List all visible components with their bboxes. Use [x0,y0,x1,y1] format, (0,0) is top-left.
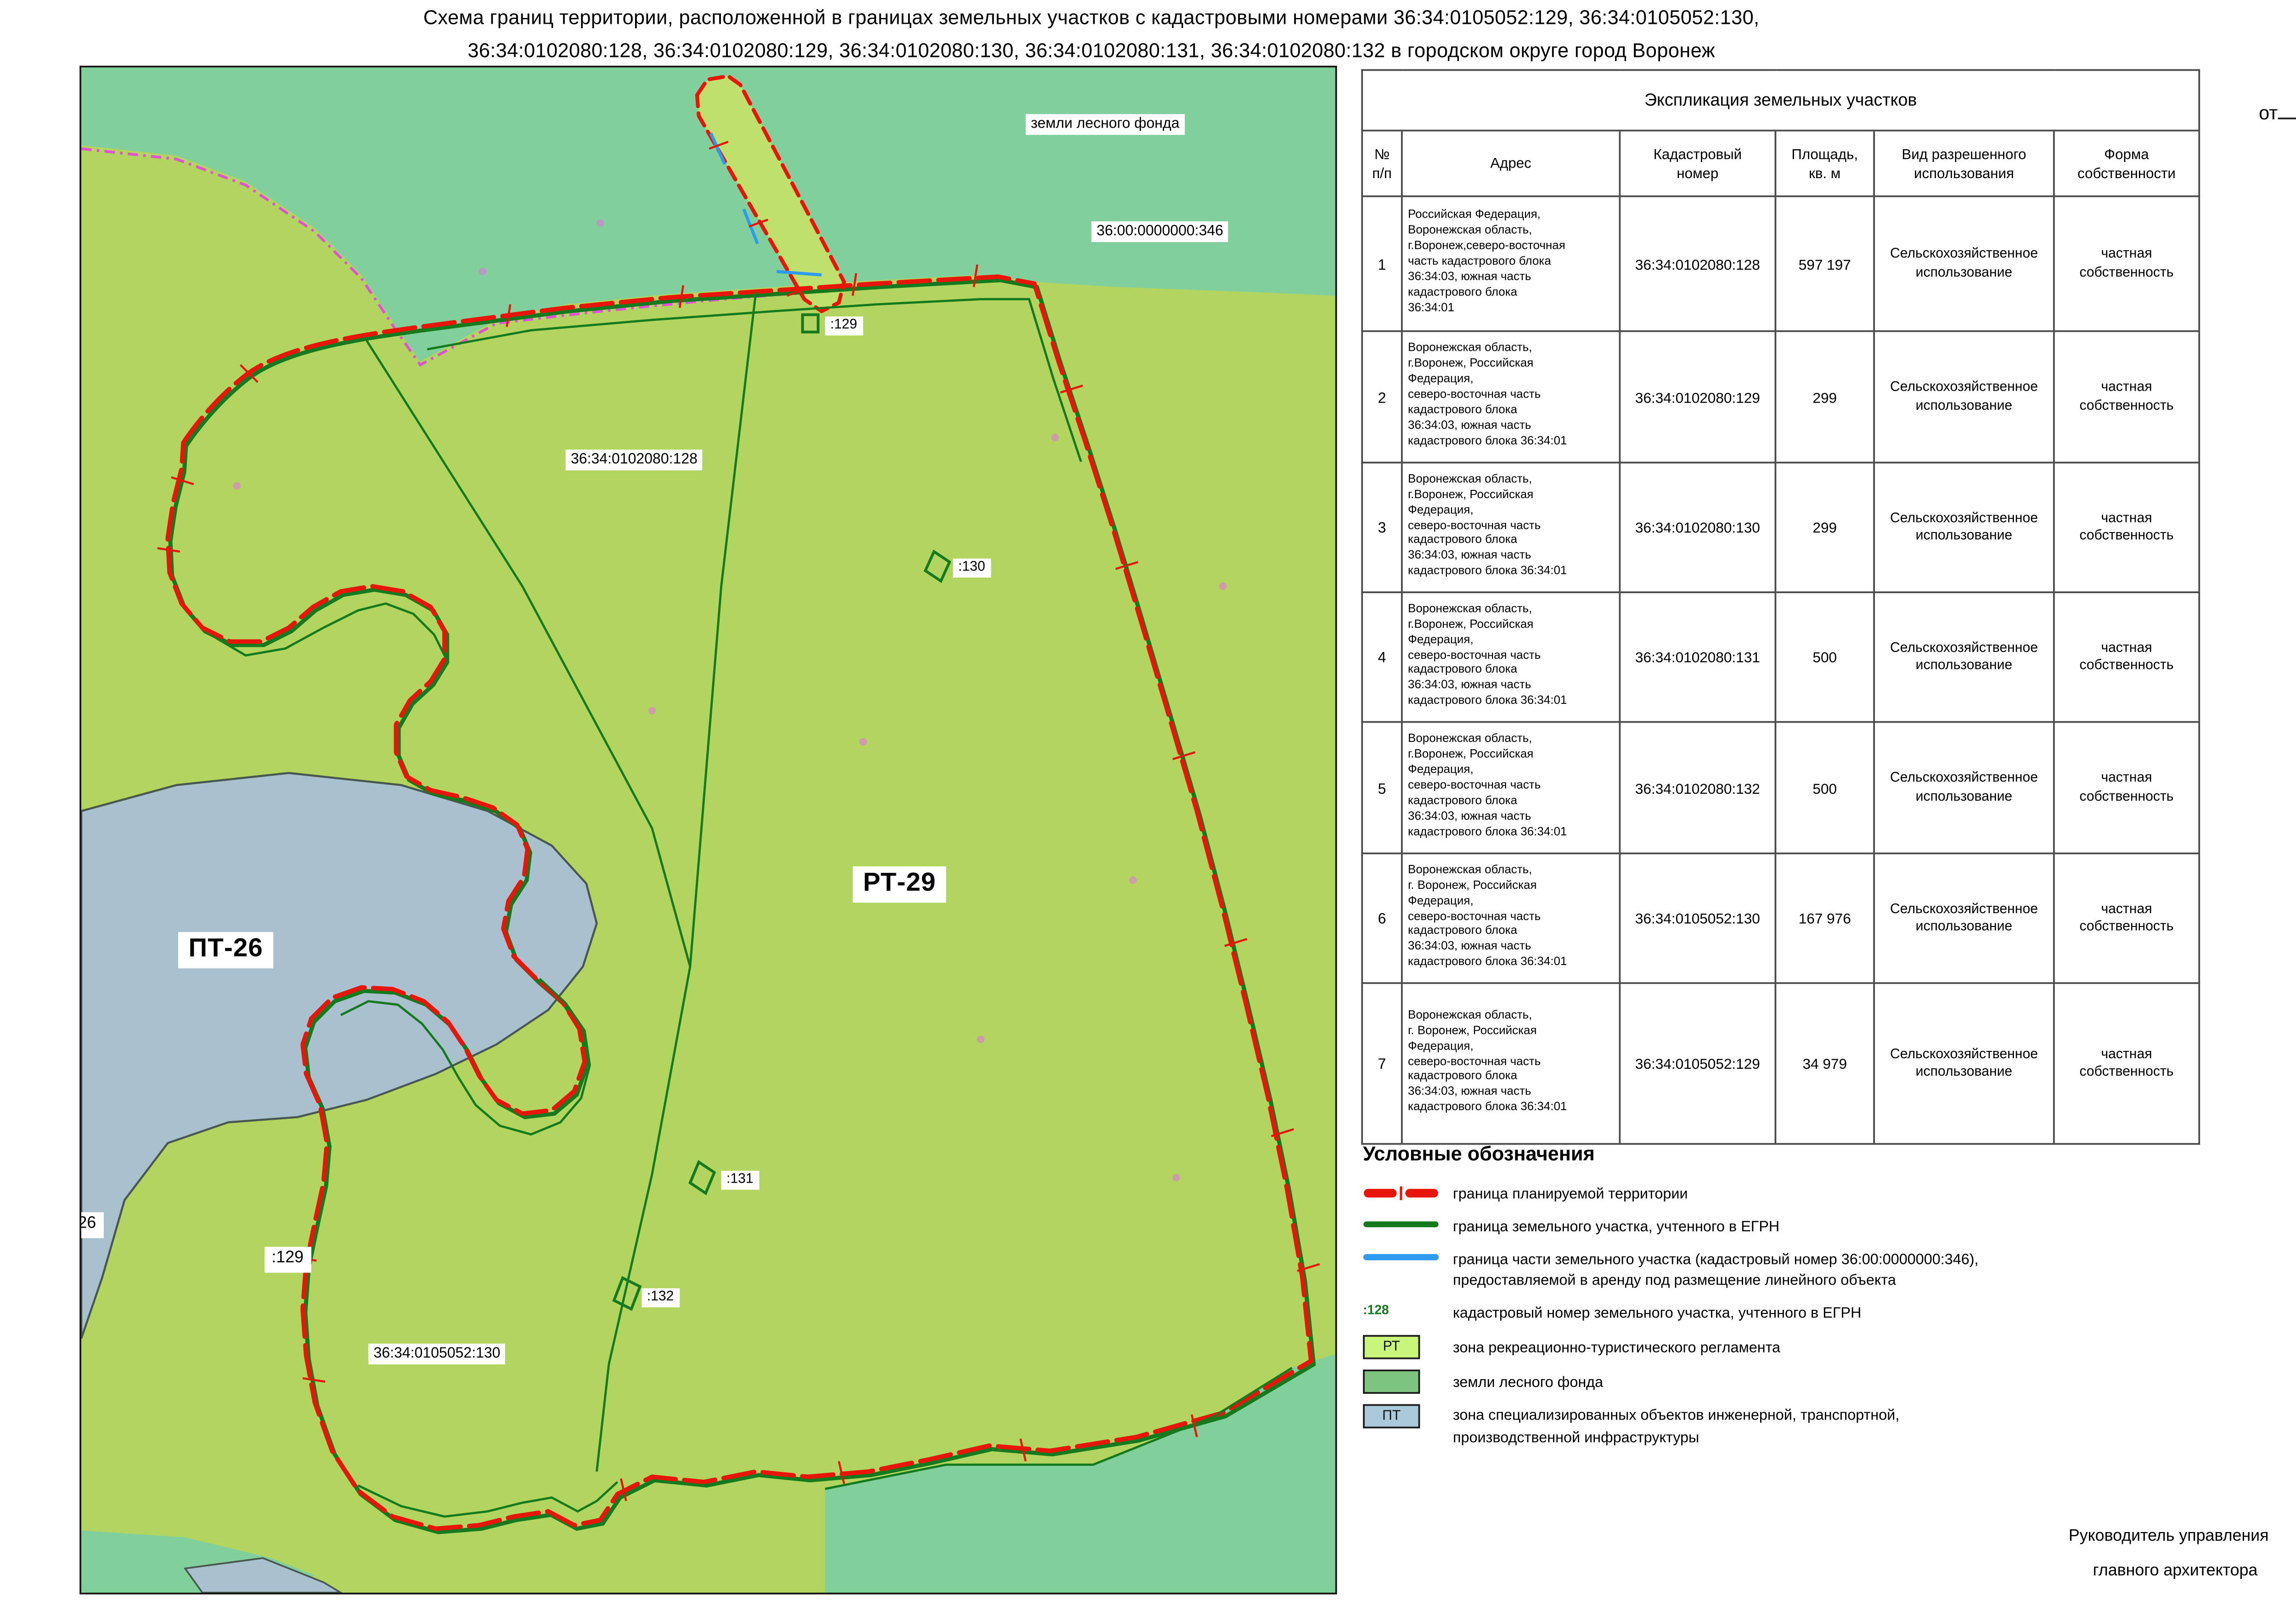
cell-area: 299 [1775,463,1874,592]
map-label-parcel-105052-130: 36:34:0105052:130 [368,1344,506,1364]
table-row: 7 Воронежская область, г. Воронеж, Росси… [1362,983,2199,1144]
forest-zone-code [1363,1370,1420,1394]
legend-item-label: граница планируемой территории [1453,1183,1688,1204]
cell-address: Воронежская область, г.Воронеж, Российск… [1402,463,1620,592]
annex-from-line: от№ [2234,99,2296,132]
map-label-zone-rt29: РТ-29 [853,866,946,902]
cell-use: Сельскохозяйственное использование [1874,853,2054,983]
legend-title: Условные обозначения [1363,1145,2236,1165]
cell-ownership: частная собственность [2054,196,2199,331]
map-label-parcel-130: :130 [953,559,990,578]
table-row: 2 Воронежская область, г.Воронеж, Россий… [1362,331,2199,462]
cell-address: Воронежская область, г. Воронеж, Российс… [1402,983,1620,1144]
cell-address: Воронежская область, г. Воронеж, Российс… [1402,853,1620,983]
annex-from-label: от [2259,105,2278,125]
cell-cadastral: 36:34:0105052:129 [1620,983,1775,1144]
map-label-parcel-128: 36:34:0102080:128 [566,449,703,469]
green-line-icon [1363,1216,1453,1235]
parcels-table: Экспликация земельных участков № п/п Адр… [1361,69,2200,1145]
col-header-area: Площадь, кв. м [1775,130,1874,196]
red-dashed-line-icon [1363,1183,1453,1201]
cell-address: Российская Федерация, Воронежская област… [1402,196,1620,331]
sheet: Схема границ территории, расположенной в… [0,0,2296,1610]
cell-num: 1 [1362,196,1402,331]
legend-zone-label: зона рекреационно-туристического регламе… [1453,1337,1780,1358]
rt-zone-code: РТ [1363,1336,1420,1360]
cell-num: 7 [1362,983,1402,1144]
cell-use: Сельскохозяйственное использование [1874,331,2054,462]
legend-item-linear-object-boundary: граница части земельного участка (кадаст… [1363,1248,2236,1291]
cell-num: 3 [1362,463,1402,592]
cell-cadastral: 36:34:0102080:130 [1620,463,1775,592]
table-row: 4 Воронежская область, г.Воронеж, Россий… [1362,592,2199,722]
map-label-parcel-129-top: :129 [825,316,862,335]
signature-position: Руководитель управления главного архитек… [2069,1529,2269,1582]
cell-ownership: частная собственность [2054,983,2199,1144]
annex-line3: городского округа город Воронеж [2234,68,2296,99]
cell-num: 6 [1362,853,1402,983]
legend-item-egrn-boundary: граница земельного участка, учтенного в … [1363,1216,2236,1237]
map-label-parcel-131: :131 [721,1171,759,1190]
cell-use: Сельскохозяйственное использование [1874,196,2054,331]
table-title: Экспликация земельных участков [1362,70,2199,131]
pt-zone-swatch: ПТ [1363,1404,1453,1429]
cell-ownership: частная собственность [2054,592,2199,722]
cell-area: 167 976 [1775,853,1874,983]
table-row: 3 Воронежская область, г.Воронеж, Россий… [1362,463,2199,592]
annex-block: Приложение к постановлению администрации… [2234,7,2296,132]
table-header-row: № п/п Адрес Кадастровый номер Площадь, к… [1362,130,2199,196]
cell-address: Воронежская область, г.Воронеж, Российск… [1402,331,1620,462]
annex-line1: Приложение [2234,7,2296,38]
cell-area: 597 197 [1775,196,1874,331]
legend-item-cadastral-number: :128 кадастровый номер земельного участк… [1363,1302,2236,1324]
map-label-forest: земли лесного фонда [1026,114,1185,134]
col-header-use: Вид разрешенного использования [1874,130,2054,196]
cell-ownership: частная собственность [2054,722,2199,853]
legend-zone-rt: РТ зона рекреационно-туристического регл… [1363,1336,2236,1360]
legend-item-label: граница земельного участка, учтенного в … [1453,1216,1779,1237]
map-label-cad-346: 36:00:0000000:346 [1092,221,1229,241]
pt-zone-code: ПТ [1363,1404,1420,1429]
map-drawing [81,67,1335,1593]
cell-ownership: частная собственность [2054,853,2199,983]
cell-num: 4 [1362,592,1402,722]
rt-zone-swatch: РТ [1363,1336,1453,1360]
cell-area: 299 [1775,331,1874,462]
cell-cadastral: 36:34:0105052:130 [1620,853,1775,983]
table-row: 6 Воронежская область, г. Воронеж, Росси… [1362,853,2199,983]
cadastral-number-sample: :128 [1363,1302,1453,1321]
cell-use: Сельскохозяйственное использование [1874,983,2054,1144]
table-row: 1 Российская Федерация, Воронежская обла… [1362,196,2199,331]
cell-cadastral: 36:34:0102080:132 [1620,722,1775,853]
legend-zone-label: зона специализированных объектов инженер… [1453,1404,1899,1448]
cell-ownership: частная собственность [2054,331,2199,462]
map-label-parcel-129-bottom: :129 [264,1247,310,1272]
col-header-cadastral: Кадастровый номер [1620,130,1775,196]
cell-ownership: частная собственность [2054,463,2199,592]
legend-zone-pt: ПТ зона специализированных объектов инже… [1363,1404,2236,1448]
cell-address: Воронежская область, г.Воронеж, Российск… [1402,722,1620,853]
cell-num: 5 [1362,722,1402,853]
signature-line2: главного архитектора [2069,1564,2269,1582]
legend-zone-label: земли лесного фонда [1453,1371,1603,1393]
legend-item-label: граница части земельного участка (кадаст… [1453,1248,1979,1291]
signature-line1: Руководитель управления [2069,1529,2269,1547]
cell-cadastral: 36:34:0102080:129 [1620,331,1775,462]
map-label-zone-pt26: ПТ-26 [178,932,274,968]
blue-line-icon [1363,1248,1453,1267]
cell-address: Воронежская область, г.Воронеж, Российск… [1402,592,1620,722]
legend: Условные обозначения граница планируемой… [1363,1145,2236,1458]
map-label-parcel-132: :132 [642,1288,679,1307]
doc-title: Схема границ территории, расположенной в… [173,4,2010,68]
annex-date-blank [2278,99,2296,120]
col-header-ownership: Форма собственности [2054,130,2199,196]
map-label-edge-26: 26 [79,1212,103,1237]
cell-use: Сельскохозяйственное использование [1874,463,2054,592]
legend-item-planned-boundary: граница планируемой территории [1363,1183,2236,1204]
pt-zone-lake [81,773,597,1339]
annex-line2: к постановлению администрации [2234,38,2296,68]
cell-cadastral: 36:34:0102080:131 [1620,592,1775,722]
cell-area: 34 979 [1775,983,1874,1144]
cell-area: 500 [1775,592,1874,722]
cell-cadastral: 36:34:0102080:128 [1620,196,1775,331]
forest-swatch [1363,1370,1453,1394]
cell-use: Сельскохозяйственное использование [1874,592,2054,722]
col-header-address: Адрес [1402,130,1620,196]
cadastral-map: земли лесного фонда 36:00:0000000:346 36… [79,66,1337,1594]
table-row: 5 Воронежская область, г.Воронеж, Россий… [1362,722,2199,853]
legend-zone-forest: земли лесного фонда [1363,1370,2236,1394]
cell-area: 500 [1775,722,1874,853]
cell-use: Сельскохозяйственное использование [1874,722,2054,853]
cell-num: 2 [1362,331,1402,462]
legend-item-label: кадастровый номер земельного участка, уч… [1453,1302,1861,1324]
doc-title-line1: Схема границ территории, расположенной в… [173,4,2010,36]
col-header-num: № п/п [1362,130,1402,196]
doc-title-line2: 36:34:0102080:128, 36:34:0102080:129, 36… [173,36,2010,68]
